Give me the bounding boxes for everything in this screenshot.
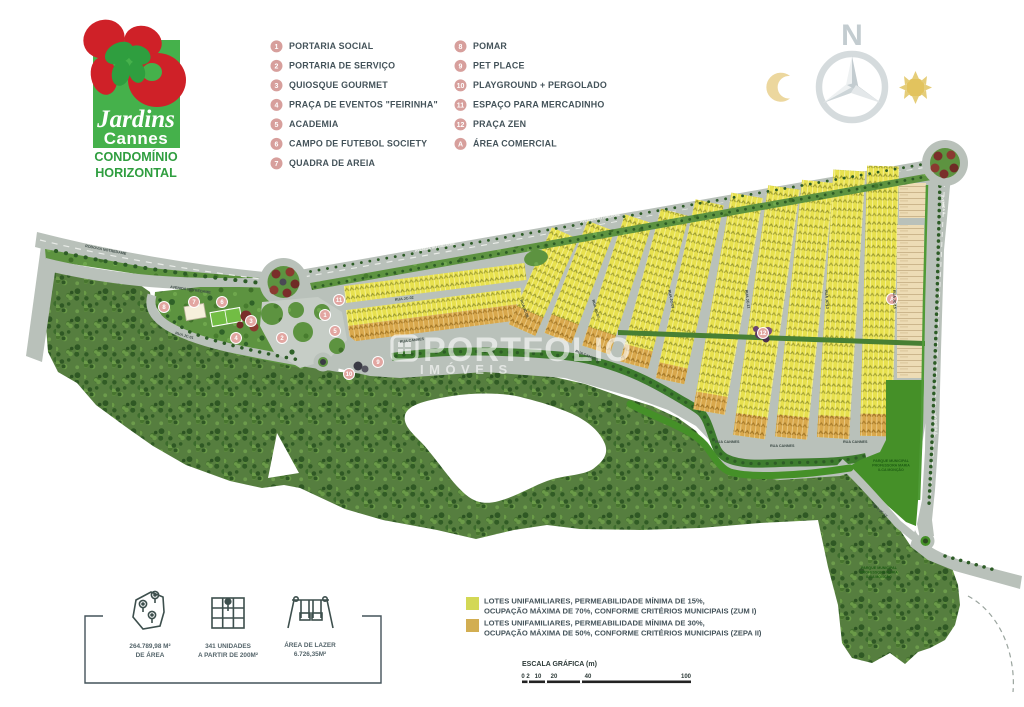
svg-text:4: 4 — [275, 102, 279, 109]
svg-text:POMAR: POMAR — [473, 41, 507, 51]
svg-text:Cannes: Cannes — [104, 129, 168, 148]
svg-text:341 UNIDADES: 341 UNIDADES — [205, 643, 252, 650]
svg-text:264.789,98 M²: 264.789,98 M² — [129, 643, 170, 650]
svg-text:ESCALA GRÁFICA (m): ESCALA GRÁFICA (m) — [522, 659, 597, 668]
svg-text:OCUPAÇÃO MÁXIMA DE 70%, CONFOR: OCUPAÇÃO MÁXIMA DE 70%, CONFORME CRITÉRI… — [484, 607, 757, 616]
svg-text:10: 10 — [457, 83, 465, 90]
svg-text:5: 5 — [275, 122, 279, 129]
svg-text:IMÓVEIS: IMÓVEIS — [420, 362, 513, 377]
svg-text:8: 8 — [459, 44, 463, 51]
svg-text:ESPAÇO PARA MERCADINHO: ESPAÇO PARA MERCADINHO — [473, 100, 604, 110]
svg-text:12: 12 — [760, 331, 767, 337]
svg-text:10: 10 — [535, 674, 542, 680]
svg-text:OCUPAÇÃO MÁXIMA DE 50%, CONFOR: OCUPAÇÃO MÁXIMA DE 50%, CONFORME CRITÉRI… — [484, 629, 762, 638]
svg-text:CAMPO DE FUTEBOL SOCIETY: CAMPO DE FUTEBOL SOCIETY — [289, 139, 427, 149]
svg-text:PRAÇA DE EVENTOS "FEIRINHA": PRAÇA DE EVENTOS "FEIRINHA" — [289, 100, 438, 110]
svg-text:A: A — [458, 141, 463, 148]
svg-text:11: 11 — [336, 298, 343, 304]
svg-text:40: 40 — [585, 674, 592, 680]
svg-text:QUADRA DE AREIA: QUADRA DE AREIA — [289, 158, 376, 168]
svg-text:PARQUE MUNICIPAL: PARQUE MUNICIPAL — [873, 459, 910, 463]
svg-text:11: 11 — [457, 102, 465, 109]
svg-text:N: N — [841, 19, 863, 52]
svg-text:ILCA MONÇÃO: ILCA MONÇÃO — [866, 574, 892, 579]
svg-text:2: 2 — [275, 63, 279, 70]
svg-text:DE ÁREA: DE ÁREA — [136, 650, 165, 659]
svg-text:PLAYGROUND + PERGOLADO: PLAYGROUND + PERGOLADO — [473, 80, 607, 90]
svg-text:QUIOSQUE GOURMET: QUIOSQUE GOURMET — [289, 80, 388, 90]
svg-text:RUA CANNES: RUA CANNES — [715, 440, 740, 444]
svg-text:100: 100 — [681, 674, 692, 680]
svg-text:ÁREA COMERCIAL: ÁREA COMERCIAL — [473, 139, 557, 149]
svg-text:PARQUE MUNICIPAL: PARQUE MUNICIPAL — [861, 566, 898, 570]
svg-text:ÁREA DE LAZER: ÁREA DE LAZER — [284, 640, 336, 649]
svg-text:CONDOMÍNIO: CONDOMÍNIO — [94, 149, 177, 164]
svg-text:HORIZONTAL: HORIZONTAL — [95, 166, 177, 180]
svg-text:ACADEMIA: ACADEMIA — [289, 119, 339, 129]
svg-text:A PARTIR DE 200M²: A PARTIR DE 200M² — [198, 652, 258, 659]
svg-text:LOTES UNIFAMILIARES, PERMEABIL: LOTES UNIFAMILIARES, PERMEABILIDADE MÍNI… — [484, 597, 705, 606]
svg-text:PROFESSORA MARIA: PROFESSORA MARIA — [860, 571, 898, 575]
svg-text:LOTES UNIFAMILIARES, PERMEABIL: LOTES UNIFAMILIARES, PERMEABILIDADE MÍNI… — [484, 619, 705, 628]
svg-text:PET PLACE: PET PLACE — [473, 61, 525, 71]
svg-text:PORTARIA DE SERVIÇO: PORTARIA DE SERVIÇO — [289, 61, 395, 71]
svg-text:ILCA MONÇÃO: ILCA MONÇÃO — [878, 467, 904, 472]
svg-text:6: 6 — [275, 141, 279, 148]
svg-text:20: 20 — [551, 674, 558, 680]
svg-text:9: 9 — [459, 63, 463, 70]
svg-text:PROFESSORA MARIA: PROFESSORA MARIA — [872, 464, 910, 468]
svg-text:RUA CANNES: RUA CANNES — [770, 444, 795, 448]
svg-text:6.726,35M²: 6.726,35M² — [294, 651, 326, 658]
svg-text:7: 7 — [275, 161, 279, 168]
svg-text:3: 3 — [275, 83, 279, 90]
svg-text:10: 10 — [346, 372, 353, 378]
svg-text:RUA CANNES: RUA CANNES — [843, 440, 868, 444]
svg-text:PORTARIA SOCIAL: PORTARIA SOCIAL — [289, 41, 374, 51]
svg-text:1: 1 — [275, 44, 279, 51]
svg-text:12: 12 — [457, 122, 465, 129]
svg-text:PRAÇA ZEN: PRAÇA ZEN — [473, 119, 526, 129]
svg-text:RUA JC-15: RUA JC-15 — [892, 290, 897, 309]
